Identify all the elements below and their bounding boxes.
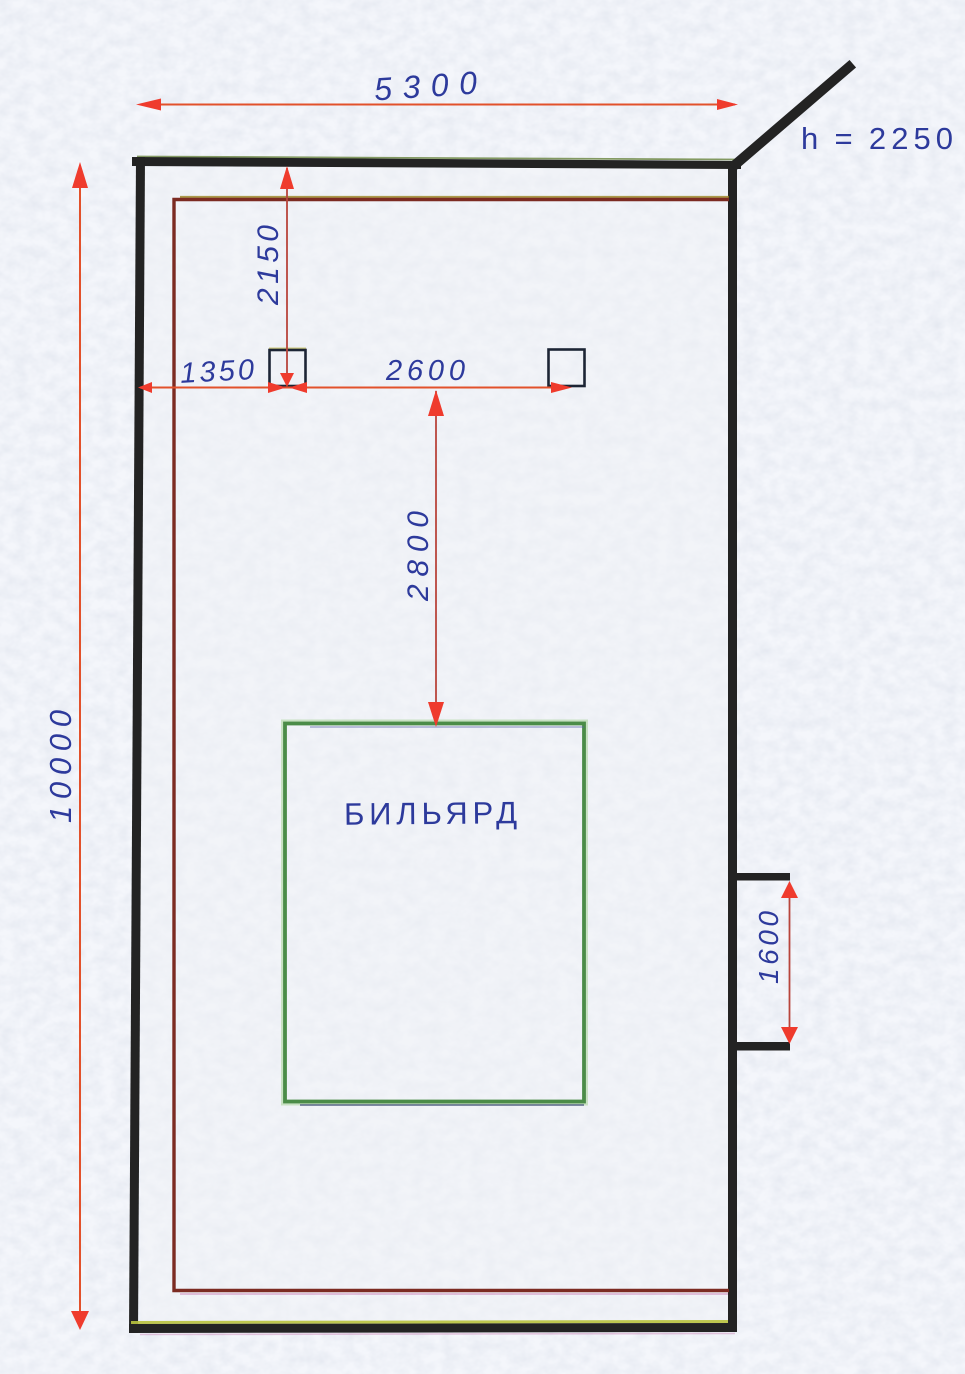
svg-text:2600: 2600 — [385, 355, 469, 387]
svg-text:10000: 10000 — [43, 710, 78, 823]
svg-text:h = 2250: h = 2250 — [801, 121, 953, 156]
svg-text:БИЛЬЯРД: БИЛЬЯРД — [344, 795, 521, 832]
